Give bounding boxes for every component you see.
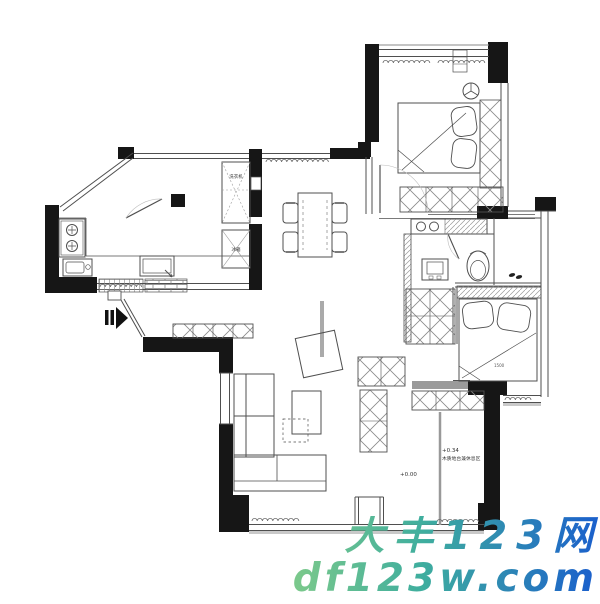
headboard bbox=[457, 286, 541, 298]
floor-elevation-label: +0.00 bbox=[400, 472, 417, 478]
faucet-icon bbox=[86, 265, 91, 270]
bathroom-door-leaf bbox=[448, 234, 459, 259]
sofa bbox=[234, 374, 326, 491]
corridor-cabinet bbox=[358, 357, 405, 386]
linen-closet bbox=[406, 289, 455, 344]
hall-screen bbox=[320, 301, 324, 357]
curtain-bedroom2 bbox=[505, 397, 531, 400]
chair bbox=[283, 203, 298, 223]
brick-half-wall bbox=[145, 279, 187, 292]
kitchen-door-leaf bbox=[126, 199, 162, 218]
coffee-table bbox=[292, 391, 321, 434]
tatami-wardrobe bbox=[412, 391, 484, 410]
kitchen-sink bbox=[63, 259, 92, 276]
slippers-icon bbox=[508, 272, 522, 279]
dining bbox=[283, 193, 347, 257]
curtain-bedroom-2 bbox=[438, 60, 485, 63]
toilet-icon bbox=[467, 251, 489, 281]
curtain-hall bbox=[266, 159, 328, 162]
basin-icon bbox=[417, 222, 426, 231]
chair bbox=[332, 232, 347, 252]
fridge-label: 冰箱 bbox=[232, 246, 241, 253]
tatami-top-wall bbox=[412, 381, 468, 389]
mosaic-ledge bbox=[99, 279, 143, 292]
door-frame bbox=[108, 291, 121, 300]
bed-width-label: 1500 bbox=[494, 363, 505, 368]
bedside-shelf bbox=[480, 100, 501, 188]
living-room bbox=[234, 330, 343, 491]
basin-icon bbox=[430, 222, 439, 231]
bathroom bbox=[404, 219, 523, 344]
chair bbox=[332, 203, 347, 223]
curtain-living-1 bbox=[252, 518, 299, 521]
wardrobe bbox=[400, 187, 503, 212]
floor-plan-svg: 洗衣机 冰箱 +0.34 木质地台兼休息区 +0.00 1500 bbox=[0, 0, 600, 600]
wall-device bbox=[251, 177, 261, 190]
watermark-site-url: df123w.com bbox=[293, 559, 598, 598]
tatami-area bbox=[358, 357, 484, 452]
rug-outline bbox=[283, 419, 308, 442]
side-table bbox=[295, 330, 342, 377]
platform-elevation-label: +0.34 bbox=[442, 448, 459, 454]
entry-arrow-icon bbox=[105, 307, 128, 329]
washing-machine-label: 洗衣机 bbox=[229, 173, 243, 180]
watermark: 大丰123网 df123w.com bbox=[293, 516, 596, 598]
master-bedroom bbox=[380, 50, 503, 213]
platform-note-label: 木质地台兼休息区 bbox=[442, 455, 481, 462]
chair bbox=[283, 232, 298, 252]
floor-plan: 洗衣机 冰箱 +0.34 木质地台兼休息区 +0.00 1500 bbox=[0, 0, 600, 600]
pillows bbox=[462, 300, 532, 333]
entry bbox=[105, 291, 253, 338]
curtain-bedroom-1 bbox=[383, 60, 430, 63]
watermark-site-name: 大丰123网 bbox=[293, 516, 600, 556]
second-bed bbox=[459, 299, 537, 381]
